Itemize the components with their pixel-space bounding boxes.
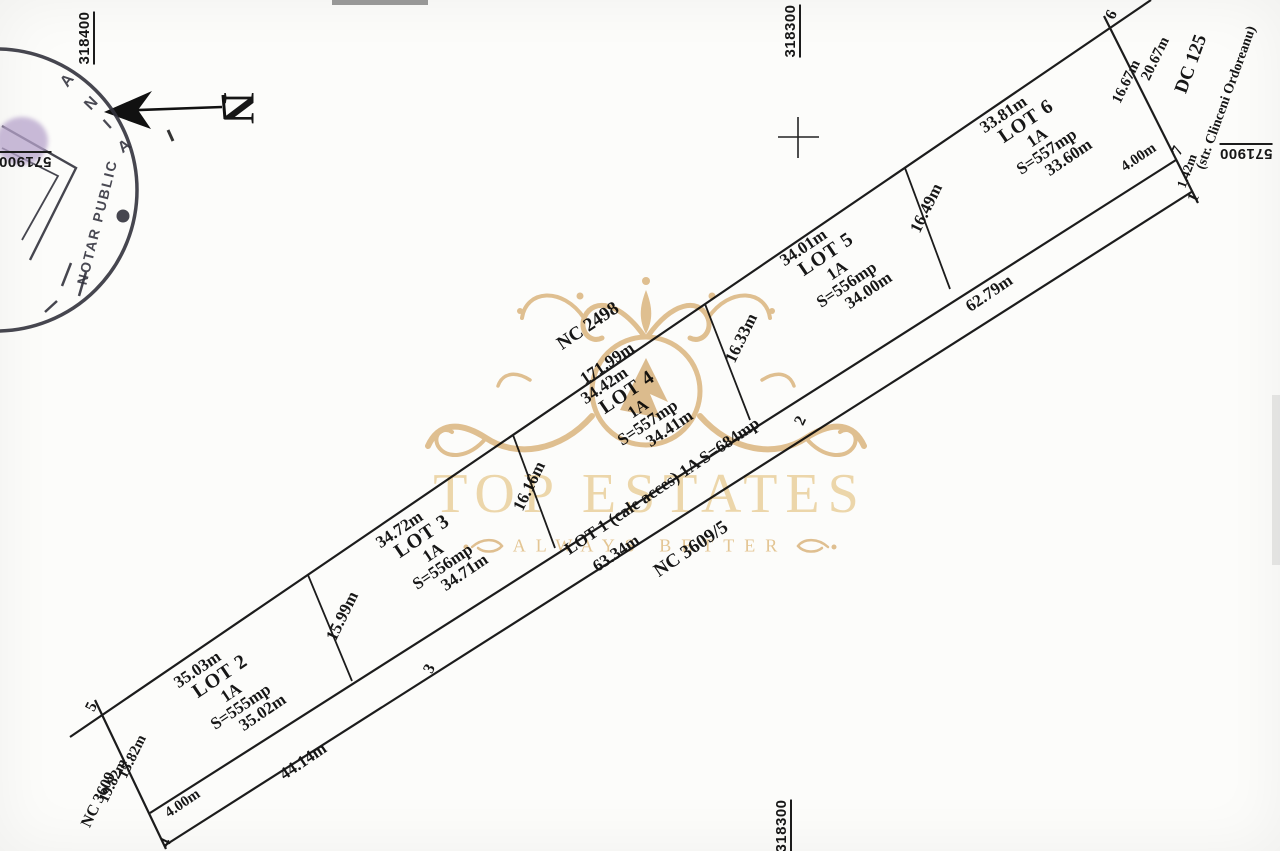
north-letter: N xyxy=(214,92,265,124)
stamp-icon xyxy=(0,49,137,331)
scan-smudge-right xyxy=(1272,395,1280,565)
grid-coord-318300-top: 318300 xyxy=(783,4,801,57)
grid-coord-571900-right: 571900 xyxy=(1219,143,1272,161)
grid-coord-571900-left: 571900 xyxy=(0,151,52,169)
north-arrow-icon xyxy=(104,91,225,141)
cadastral-plan-page: A N I A NOTAR PUBLIC N 318400 318300 318… xyxy=(0,0,1280,851)
grid-coord-318300-bottom: 318300 xyxy=(774,799,792,851)
grid-coord-318400: 318400 xyxy=(77,11,95,64)
grid-cross-icon xyxy=(778,117,819,158)
scan-smudge-top xyxy=(332,0,428,5)
